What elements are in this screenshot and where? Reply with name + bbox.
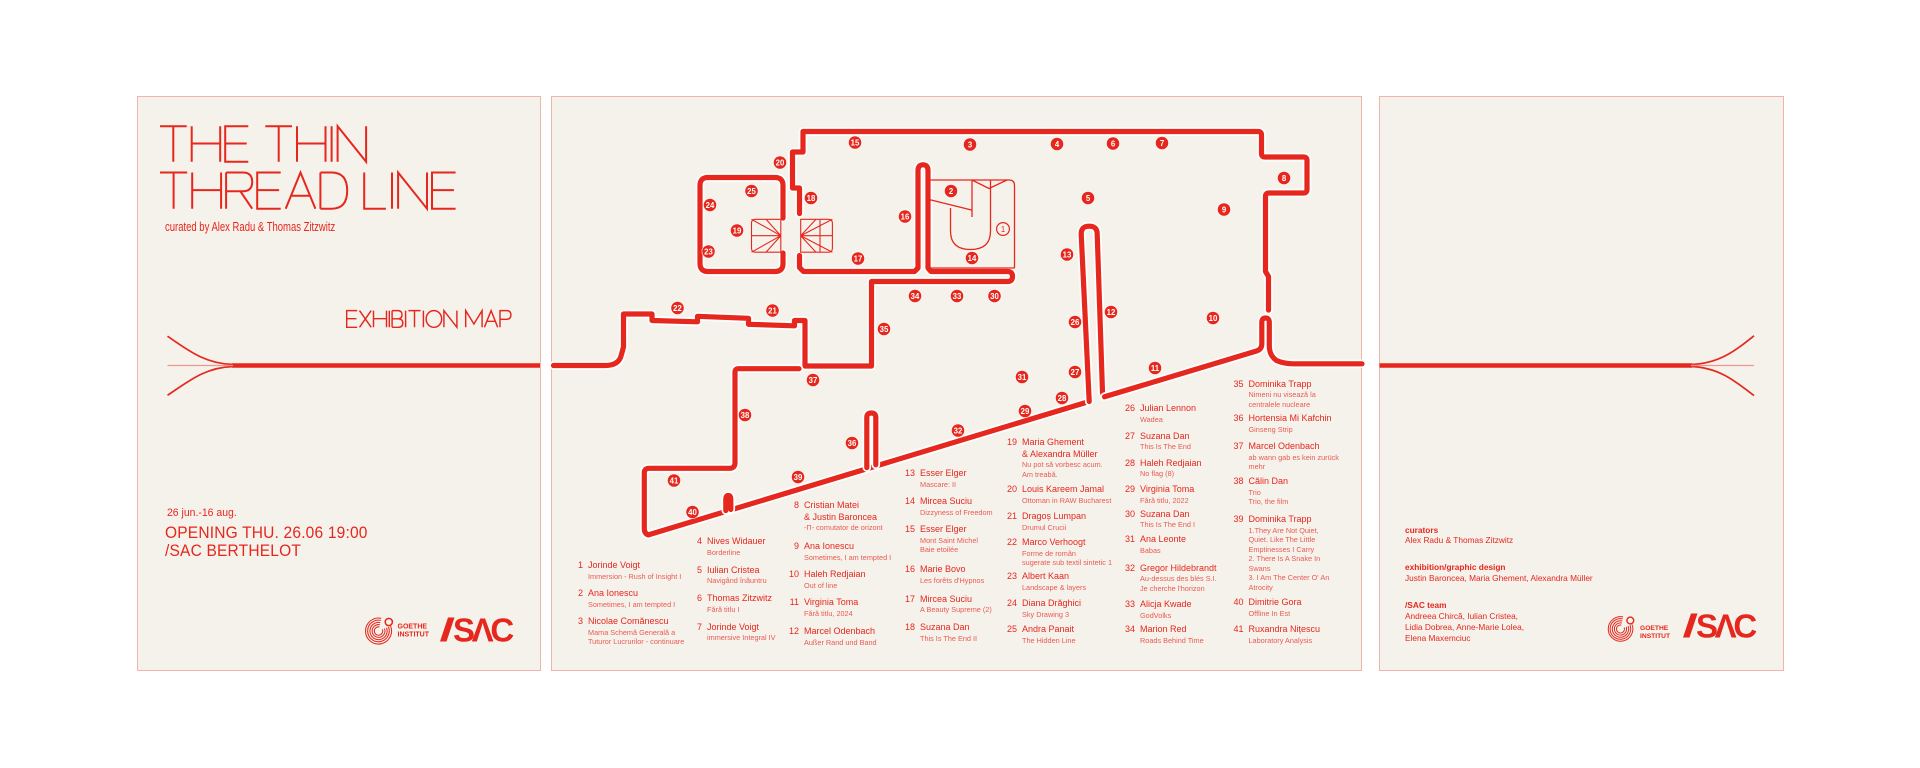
svg-text:4: 4 — [1055, 140, 1060, 149]
svg-text:28: 28 — [1058, 394, 1067, 403]
svg-text:17: 17 — [854, 254, 863, 263]
svg-text:24: 24 — [706, 201, 715, 210]
svg-text:40: 40 — [688, 508, 697, 517]
svg-text:2: 2 — [949, 187, 954, 196]
svg-text:10: 10 — [1209, 314, 1218, 323]
svg-text:13: 13 — [1063, 250, 1072, 259]
svg-text:33: 33 — [953, 292, 962, 301]
svg-text:SΛC: SΛC — [453, 612, 513, 649]
svg-text:11: 11 — [1151, 364, 1160, 373]
svg-text:27: 27 — [1071, 368, 1080, 377]
svg-text:39: 39 — [794, 473, 803, 482]
svg-text:SΛC: SΛC — [1696, 608, 1756, 645]
svg-text:12: 12 — [1107, 308, 1116, 317]
svg-text:23: 23 — [704, 247, 713, 256]
svg-text:GOETHE: GOETHE — [398, 624, 428, 631]
svg-text:19: 19 — [733, 226, 742, 235]
svg-text:6: 6 — [1111, 139, 1116, 148]
svg-text:16: 16 — [901, 212, 910, 221]
svg-text:29: 29 — [1021, 407, 1030, 416]
svg-text:32: 32 — [954, 426, 963, 435]
svg-text:22: 22 — [673, 304, 682, 313]
svg-text:7: 7 — [1160, 139, 1164, 148]
svg-text:9: 9 — [1222, 205, 1227, 214]
svg-text:15: 15 — [851, 138, 860, 147]
svg-text:31: 31 — [1018, 373, 1027, 382]
svg-text:20: 20 — [776, 158, 785, 167]
svg-text:38: 38 — [741, 411, 750, 420]
svg-text:25: 25 — [747, 187, 756, 196]
svg-text:30: 30 — [990, 292, 999, 301]
svg-text:3: 3 — [968, 140, 973, 149]
svg-text:5: 5 — [1086, 194, 1091, 203]
svg-text:GOETHE: GOETHE — [1640, 625, 1669, 632]
svg-text:21: 21 — [768, 306, 777, 315]
svg-text:36: 36 — [848, 439, 857, 448]
svg-text:INSTITUT: INSTITUT — [1640, 633, 1671, 640]
svg-text:18: 18 — [807, 194, 816, 203]
svg-text:14: 14 — [968, 254, 977, 263]
svg-text:8: 8 — [1282, 174, 1287, 183]
svg-text:INSTITUT: INSTITUT — [398, 632, 430, 639]
svg-text:34: 34 — [911, 292, 920, 301]
svg-text:1: 1 — [1001, 225, 1005, 234]
svg-text:37: 37 — [809, 376, 818, 385]
svg-text:35: 35 — [880, 325, 889, 334]
svg-text:41: 41 — [670, 476, 679, 485]
svg-text:26: 26 — [1071, 318, 1080, 327]
